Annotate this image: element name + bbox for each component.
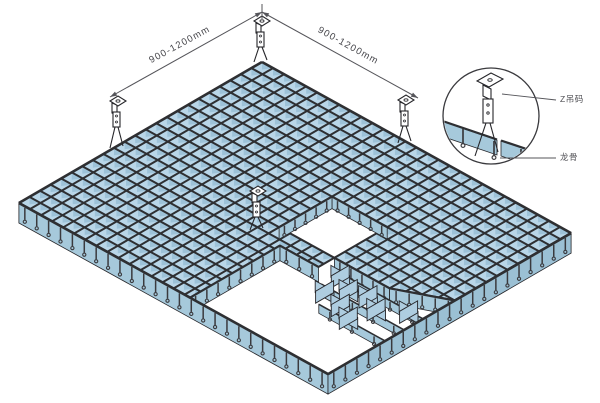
detail-label-z-hanger-clip: Z吊码 bbox=[560, 94, 584, 104]
hanger-bracket bbox=[254, 16, 270, 62]
grille-ceiling-installation-diagram: 900-1200mm 900-1200mm Z吊码 龙骨 bbox=[0, 0, 600, 403]
detail-callout-drawing bbox=[443, 68, 556, 169]
hanger-bracket bbox=[110, 96, 126, 148]
detail-callout: Z吊码 龙骨 bbox=[443, 68, 584, 169]
diagram-canvas: 900-1200mm 900-1200mm Z吊码 龙骨 bbox=[0, 0, 600, 403]
hanger-bracket bbox=[398, 95, 414, 143]
detail-label-keel: 龙骨 bbox=[560, 152, 578, 162]
dimension-label-right: 900-1200mm bbox=[316, 25, 381, 67]
